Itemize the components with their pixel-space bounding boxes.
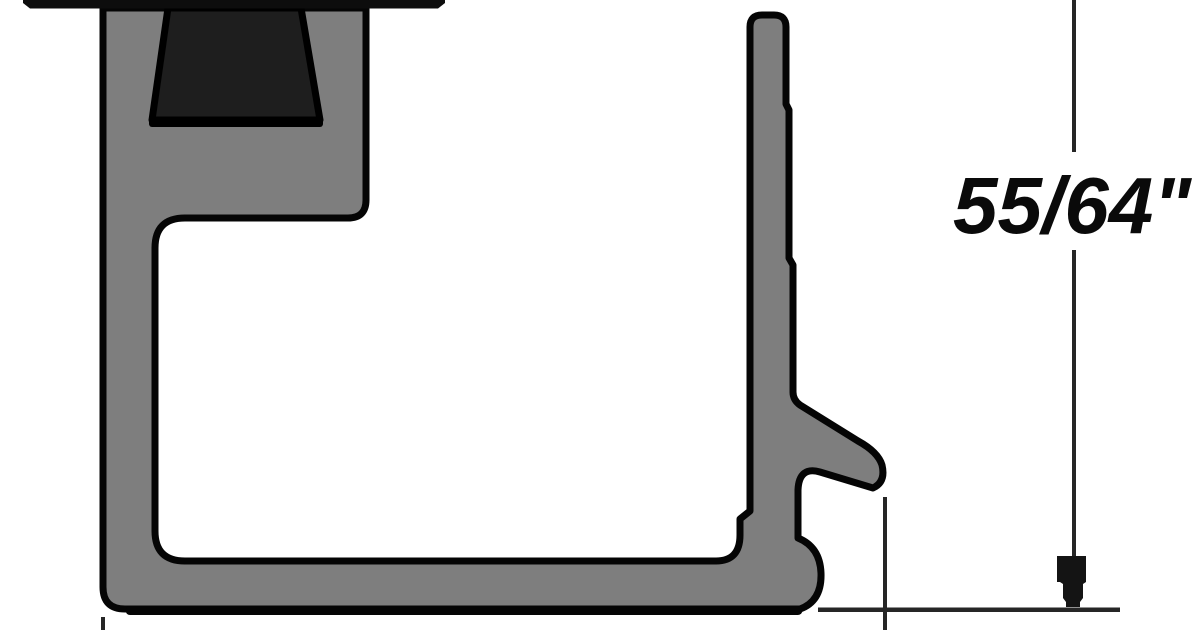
svg-text:55/64": 55/64" (953, 161, 1192, 250)
